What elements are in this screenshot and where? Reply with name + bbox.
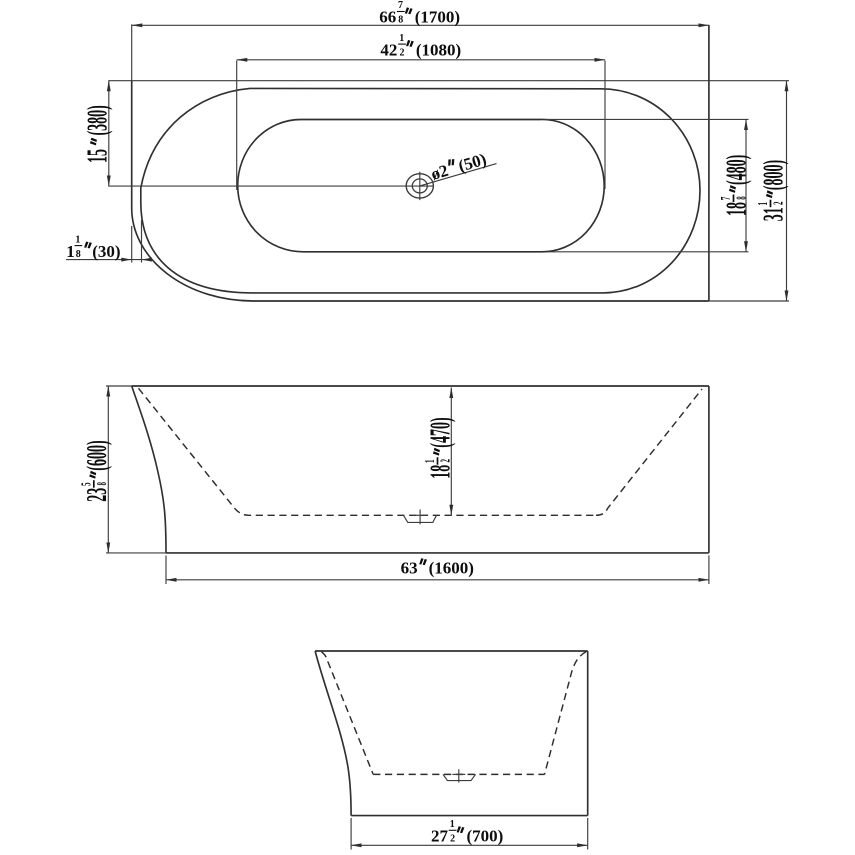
svg-text:63: 63 (401, 559, 418, 578)
svg-text:(50): (50) (456, 149, 489, 175)
svg-text:7: 7 (719, 196, 734, 200)
svg-text:8: 8 (76, 249, 81, 260)
svg-text:2: 2 (438, 459, 453, 463)
svg-text:(700): (700) (467, 827, 504, 846)
svg-text:27: 27 (431, 827, 449, 846)
svg-text:1: 1 (756, 202, 771, 205)
svg-text:1: 1 (75, 234, 80, 245)
svg-text:42: 42 (380, 40, 397, 59)
svg-text:1: 1 (399, 33, 404, 44)
svg-text:(600): (600) (81, 440, 113, 470)
svg-text:23: 23 (81, 488, 113, 502)
svg-text:1: 1 (450, 819, 455, 830)
svg-text:(800): (800) (757, 160, 789, 190)
svg-text:2: 2 (450, 834, 455, 845)
svg-text:18: 18 (720, 202, 752, 216)
svg-text:5: 5 (79, 482, 94, 486)
svg-text:2: 2 (771, 201, 786, 205)
svg-text:15: 15 (81, 149, 113, 163)
svg-text:8: 8 (734, 196, 749, 200)
svg-text:(1600): (1600) (429, 559, 474, 578)
svg-text:(470): (470) (424, 417, 456, 447)
svg-text:66: 66 (379, 8, 396, 27)
svg-text:7: 7 (398, 0, 403, 11)
svg-text:(30): (30) (92, 242, 120, 261)
svg-text:1: 1 (423, 459, 438, 462)
svg-text:1: 1 (66, 242, 75, 261)
svg-text:8: 8 (398, 15, 403, 26)
svg-text:(380): (380) (81, 105, 113, 135)
svg-text:2: 2 (400, 47, 405, 58)
svg-text:31: 31 (757, 207, 789, 221)
svg-text:18: 18 (424, 465, 456, 479)
svg-text:(1700): (1700) (415, 8, 460, 27)
svg-text:8: 8 (94, 482, 109, 486)
svg-text:(1080): (1080) (416, 40, 461, 59)
svg-text:(480): (480) (720, 155, 752, 185)
